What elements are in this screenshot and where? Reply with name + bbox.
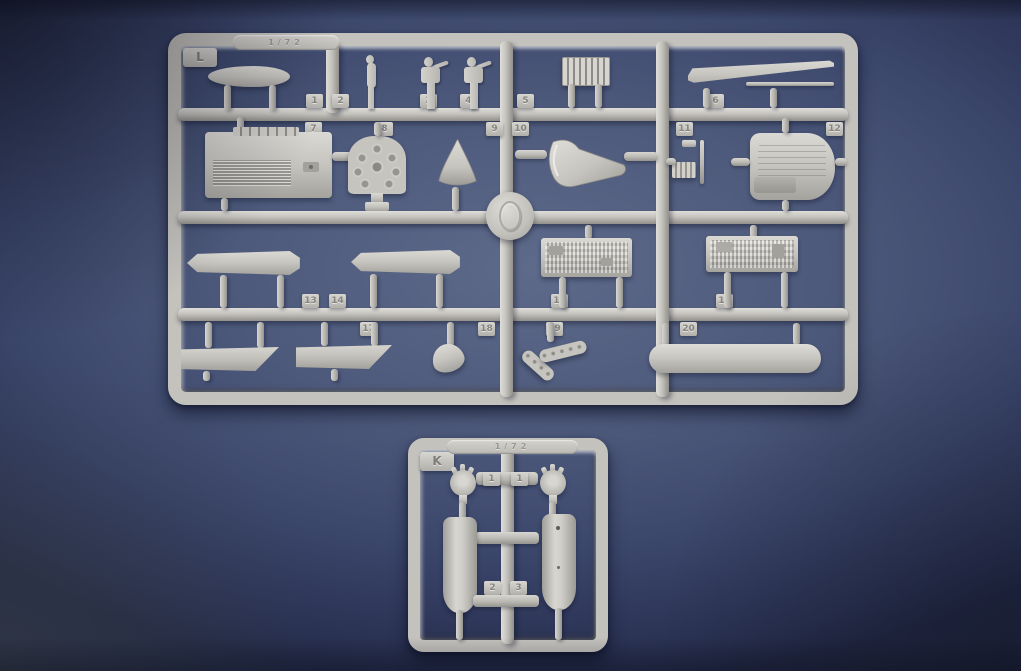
connector-arm: [731, 158, 750, 166]
sprue-gate-post: [447, 322, 454, 346]
sprue-gate-post: [321, 322, 328, 346]
cylinder-hole: [556, 526, 560, 530]
panel-detail-block: [549, 246, 563, 255]
sprue-gate-post: [203, 371, 210, 381]
connector-arm: [624, 152, 658, 161]
sprue-gate-post: [782, 200, 789, 211]
bracket-top: [682, 140, 696, 147]
part-small-radial-engine: [538, 464, 568, 504]
part-radiator-grille: [562, 57, 610, 86]
panel-detail-block: [601, 258, 613, 266]
sprue-gate-post: [205, 322, 212, 348]
connector-bar: [473, 595, 539, 607]
connector-arm: [515, 150, 547, 159]
sprue-letter: L: [196, 50, 204, 64]
part-float-torpedo: [187, 251, 301, 275]
part-standing-crew-figure: [360, 55, 380, 109]
part-tapered-boom: [688, 60, 834, 94]
bracket-rod: [700, 140, 704, 184]
sprue-k: K 1/72 1 1 2 3: [408, 438, 608, 652]
sprue-rail-horizontal: [178, 308, 848, 321]
part-engine-cowl-panel: [750, 133, 835, 200]
sprue-gate-post: [616, 277, 623, 308]
sprue-gate-post: [703, 88, 710, 108]
sprue-gate-post: [585, 225, 592, 239]
sprue-gate-post: [277, 275, 284, 308]
boom-rod: [746, 82, 834, 86]
radial-engine-face: [348, 136, 406, 194]
part-number-tab: 11: [676, 122, 693, 136]
panel-detail-block: [716, 242, 732, 252]
photo-background: L 1/72 1 2 3 4 5 6 7 8 9 10 11 12 13 14 …: [0, 0, 1021, 671]
part-cowling-scoop: [545, 134, 626, 190]
part-number-tab: 10: [512, 122, 529, 136]
sprue-gate-post: [770, 88, 777, 108]
embossed-marking-text: 1/72: [495, 442, 531, 451]
sprue-gate-post: [452, 187, 459, 211]
sprue-gate-post: [374, 122, 381, 136]
part-number-tab: 12: [826, 122, 843, 136]
part-small-nose-cone: [428, 340, 467, 377]
sprue-gate-post: [436, 274, 443, 308]
part-detail-panel: [706, 236, 798, 272]
part-drop-tank: [649, 344, 821, 373]
part-gunner-figure: [456, 57, 492, 109]
sprue-gate-post: [370, 274, 377, 308]
engine-crankcase: [540, 470, 566, 496]
sprue-gate-post: [427, 83, 435, 109]
sprue-gate-post: [368, 87, 374, 109]
spinner-cone-shape: [437, 139, 478, 187]
part-gunner-figure: [413, 57, 449, 109]
sprue-gate-post: [470, 83, 478, 109]
sprue-l: L 1/72 1 2 3 4 5 6 7 8 9 10 11 12 13 14 …: [168, 33, 858, 405]
cowl-panel-lines: [758, 143, 826, 181]
part-number-tab: 2: [484, 581, 501, 595]
engine-top-bumps: [233, 127, 299, 136]
part-curved-duct: [517, 339, 591, 383]
part-float-torpedo: [351, 250, 461, 274]
sprue-gate-post: [724, 272, 731, 308]
embossed-marking: 1/72: [447, 440, 578, 454]
sprue-gate-post: [257, 322, 264, 348]
part-number-tab: 14: [329, 294, 346, 308]
sprue-gate-post: [781, 272, 788, 308]
figure-head: [467, 57, 476, 67]
sprue-gate-post: [269, 85, 276, 110]
part-number-tab: 1: [511, 472, 528, 486]
radial-engine-base: [365, 202, 389, 211]
part-number-tab: 13: [302, 294, 319, 308]
part-tapered-cylinder-with-holes: [542, 514, 576, 610]
part-number-tab: 3: [510, 581, 527, 595]
figure-body: [367, 63, 376, 88]
cowling-scoop-shape: [545, 134, 626, 190]
cylinder-hole: [557, 566, 560, 569]
part-small-radial-engine: [448, 464, 478, 504]
part-angled-flat-plate: [296, 345, 392, 369]
part-number-tab: 20: [680, 322, 697, 336]
part-spinner-cone: [437, 139, 478, 187]
part-detail-panel: [541, 238, 632, 277]
sprue-gate-post: [662, 323, 669, 345]
sprue-gate-post: [456, 610, 463, 640]
part-number-tab: 1: [306, 94, 323, 108]
connector-arm: [666, 158, 676, 165]
sprue-gate-post: [220, 275, 227, 308]
sprue-gate-post: [224, 85, 231, 110]
part-tapered-cylinder: [443, 517, 477, 613]
sprue-letter: K: [432, 454, 441, 468]
cowl-panel-lip: [754, 177, 796, 193]
sprue-gate-post: [221, 198, 228, 211]
sprue-gate-post: [782, 118, 789, 133]
sprue-gate-post: [555, 608, 562, 640]
part-number-tab: 9: [486, 122, 503, 136]
duct-segment: [538, 339, 588, 363]
engine-ribs: [213, 160, 291, 186]
connector-arm: [835, 158, 847, 166]
sprue-gate-post: [331, 369, 338, 381]
sprue-gate-post: [595, 84, 602, 108]
figure-torso: [421, 67, 440, 83]
molding-logo-boss: [486, 192, 534, 240]
part-small-bracket: [672, 140, 708, 186]
sprue-letter-tab: L: [183, 48, 217, 67]
connector-bar: [475, 532, 539, 544]
sprue-gate-post: [793, 323, 800, 345]
bracket-box: [672, 162, 696, 178]
part-number-tab: 18: [478, 322, 495, 336]
figure-head: [424, 57, 433, 67]
sprue-rail-horizontal: [178, 108, 848, 121]
sprue-gate-post: [371, 322, 378, 346]
engine-crankcase: [450, 470, 476, 496]
sprue-gate-post: [559, 277, 566, 308]
panel-detail-block: [772, 244, 784, 258]
engine-dot: [309, 165, 313, 169]
sprue-gate-post: [568, 84, 575, 108]
part-angled-flat-plate: [181, 347, 279, 371]
part-number-tab: 1: [483, 472, 500, 486]
part-number-tab: 2: [332, 94, 349, 108]
figure-torso: [464, 67, 483, 83]
embossed-marking-text: 1/72: [268, 38, 304, 47]
part-number-tab: 5: [517, 94, 534, 108]
part-radial-engine-bank: [348, 136, 406, 211]
part-engine-block: [205, 132, 332, 198]
embossed-marking: 1/72: [233, 35, 339, 50]
part-streamlined-fairing: [208, 66, 290, 87]
